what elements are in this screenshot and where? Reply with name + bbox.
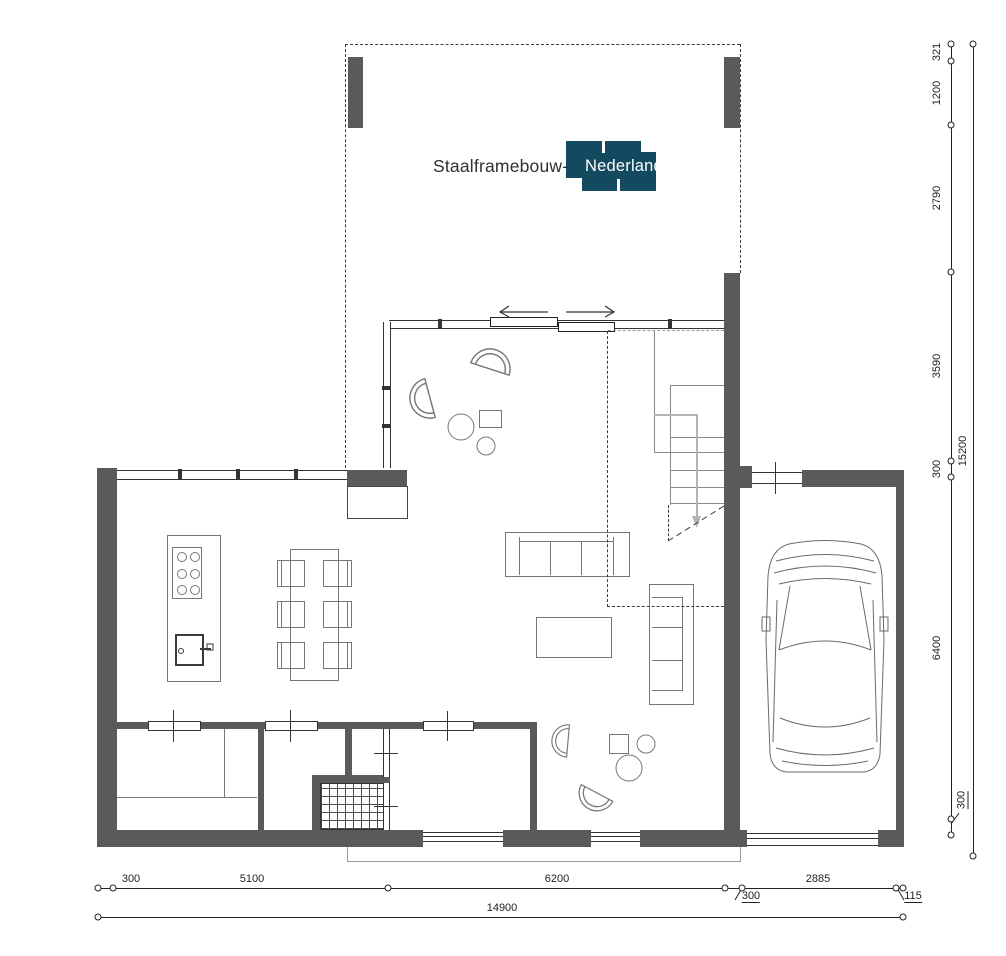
dim-line-right-outer (973, 44, 974, 856)
car-body (766, 541, 884, 773)
dim-tick (970, 853, 977, 860)
fan-chair-4 (573, 785, 613, 818)
dim-label-300-bottom-left: 300 (122, 873, 140, 885)
dim-tick (970, 41, 977, 48)
fan-chair-3 (551, 724, 570, 758)
car-rear-window (780, 718, 870, 727)
dim-tick (948, 816, 955, 823)
dim-label-115: 115 (904, 890, 922, 903)
car-rear-bumper (782, 761, 868, 766)
dim-label-5100: 5100 (240, 873, 264, 885)
dim-label-6400: 6400 (931, 636, 943, 660)
plan-svg-overlay (0, 0, 1006, 956)
fan-chair-1 (471, 344, 515, 375)
dim-tick (110, 885, 117, 892)
dim-tick (948, 41, 955, 48)
dim-tick (948, 458, 955, 465)
dim-label-14900: 14900 (487, 902, 518, 914)
floor-plan-canvas: Staalframebouw- Nederland (0, 0, 1006, 956)
round-table-lower (616, 755, 642, 781)
fan-chair-2 (405, 379, 435, 423)
dim-tick (95, 885, 102, 892)
dim-label-2790: 2790 (931, 186, 943, 210)
car-front-line-1 (776, 555, 874, 562)
car-a-pillar-right (860, 586, 871, 650)
dim-label-300-bottom-right: 300 (742, 890, 760, 903)
dim-label-321: 321 (931, 43, 943, 61)
dim-tick (95, 914, 102, 921)
dim-tick (385, 885, 392, 892)
car-side-left (773, 600, 777, 742)
dim-label-3590: 3590 (931, 354, 943, 378)
sliding-arrow-left (500, 306, 548, 317)
dim-line-bottom-inner (98, 888, 903, 889)
dim-tick (948, 58, 955, 65)
round-table-upper (448, 414, 474, 440)
dim-label-15200: 15200 (957, 436, 969, 467)
dim-label-300-right-lower: 300 (956, 791, 969, 809)
car-icon (762, 541, 888, 773)
dim-label-300-right-upper: 300 (931, 460, 943, 478)
car-front-line-2 (774, 566, 876, 573)
sliding-arrow-right (566, 306, 614, 317)
dim-line-bottom-outer (98, 917, 903, 918)
dim-tick (948, 474, 955, 481)
dim-tick (722, 885, 729, 892)
round-stool-upper (477, 437, 495, 455)
car-trunk-line (776, 748, 874, 755)
car-side-right (873, 600, 877, 742)
car-windshield-base (779, 641, 871, 650)
car-a-pillar-left (779, 586, 790, 650)
dim-tick (948, 269, 955, 276)
sink-drain (179, 649, 184, 654)
dim-line-right-inner (951, 44, 952, 835)
dim-tick (948, 832, 955, 839)
stair-cutline-diagonal (668, 506, 724, 541)
stair-walkline-arrowhead (692, 516, 701, 528)
dim-tick (900, 914, 907, 921)
dim-tick (893, 885, 900, 892)
dim-label-1200: 1200 (931, 81, 943, 105)
car-hood-line (779, 579, 871, 585)
dim-label-6200: 6200 (545, 873, 569, 885)
round-stool-lower (637, 735, 655, 753)
dim-label-2885: 2885 (806, 873, 830, 885)
dim-tick (948, 122, 955, 129)
